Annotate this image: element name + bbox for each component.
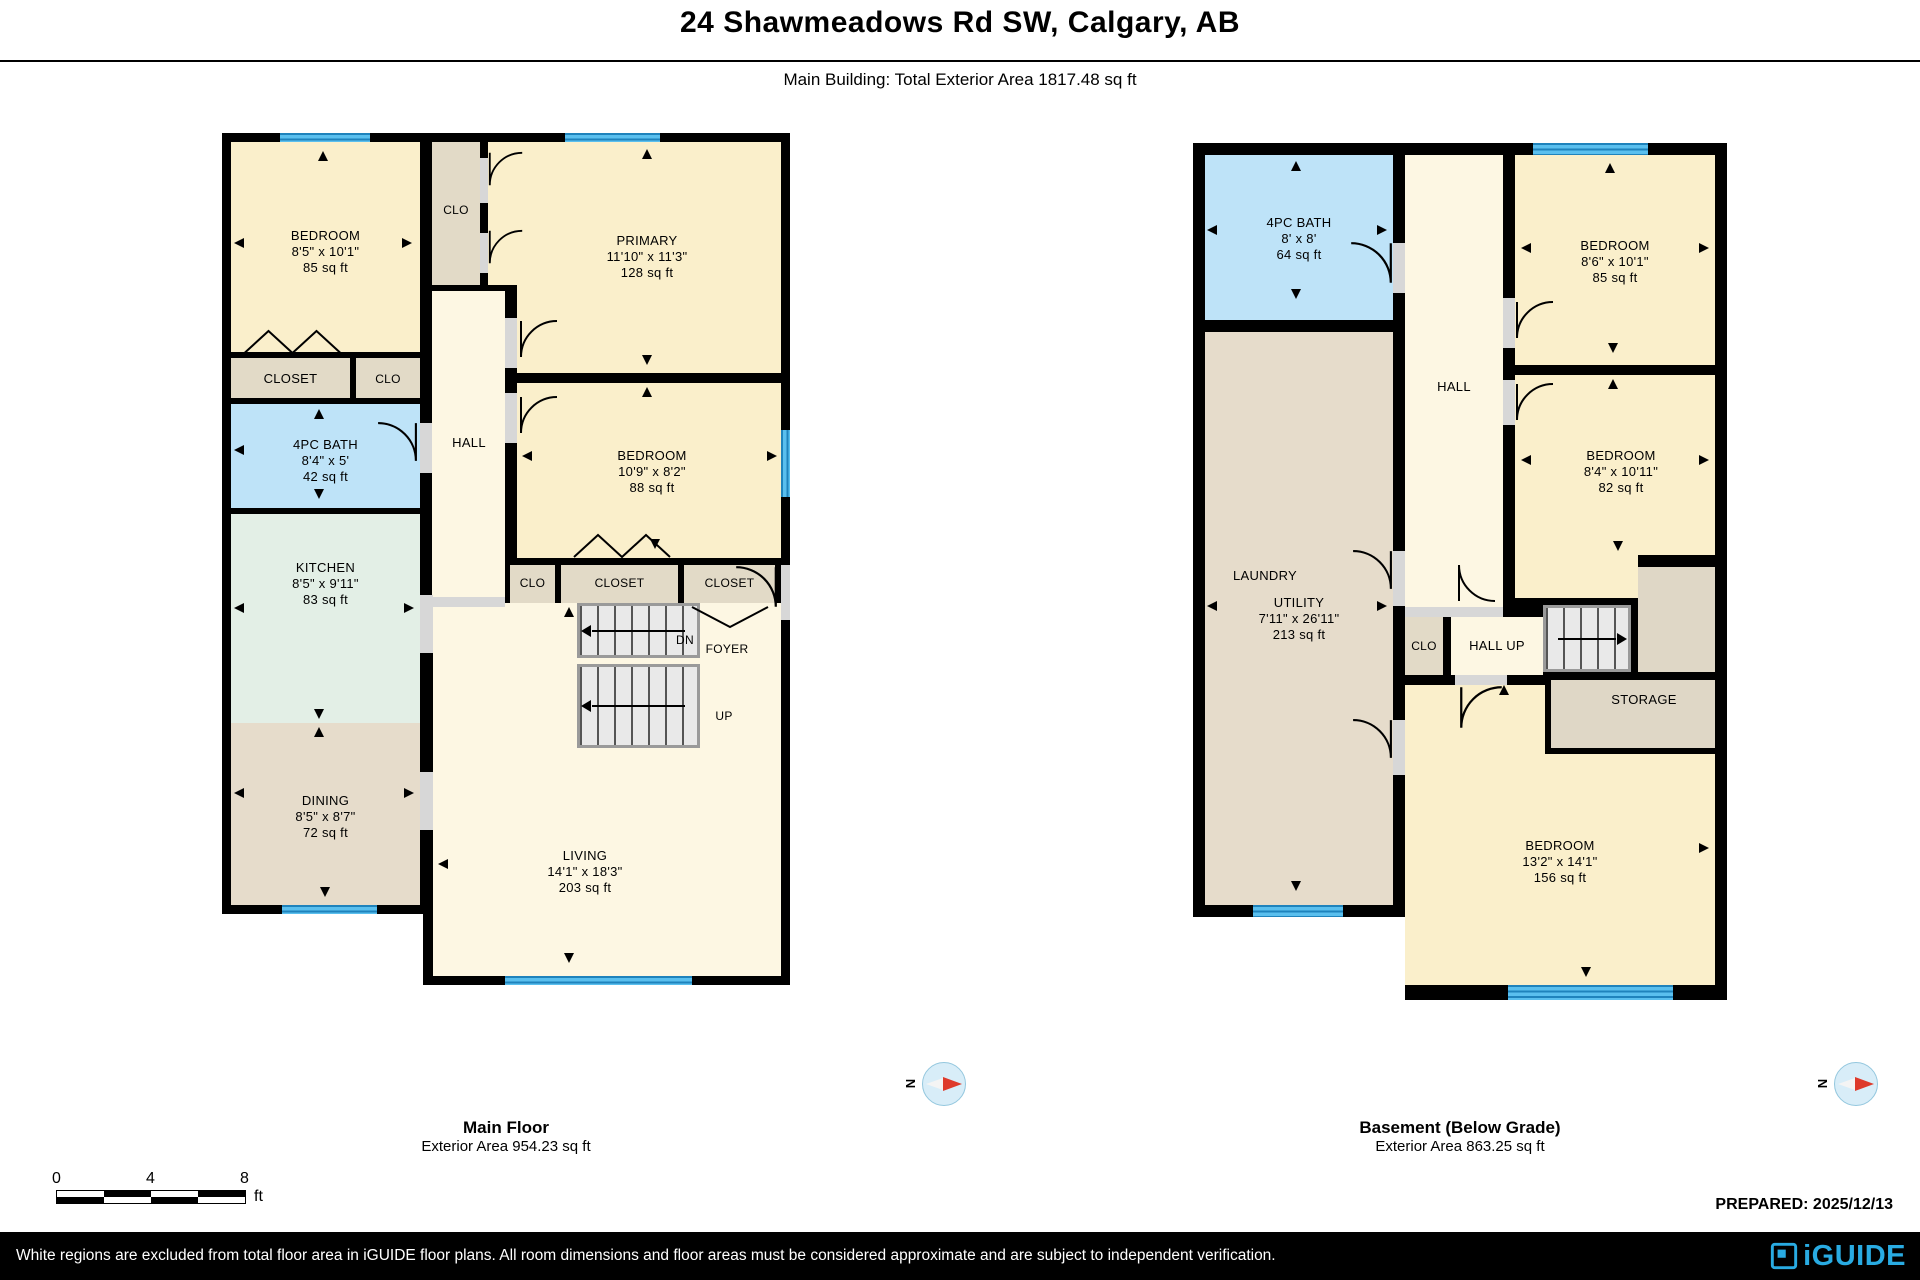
floor-plan-page: 24 Shawmeadows Rd SW, Calgary, AB Main B…: [0, 0, 1920, 1280]
scale-tick-4: 4: [146, 1170, 155, 1188]
stairs-up: [1543, 605, 1631, 672]
iguide-logo: iGUIDE: [1770, 1232, 1906, 1280]
room-label-clo-left: CLO: [356, 372, 420, 386]
compass-main-floor: N: [900, 1062, 970, 1106]
window: [282, 905, 377, 914]
main-floor-caption: Main Floor Exterior Area 954.23 sq ft: [222, 1118, 790, 1156]
scale-tick-0: 0: [52, 1170, 61, 1188]
main-floor-plan: BEDROOM8'5" x 10'1"85 sq ft CLO PRIMARY1…: [222, 133, 790, 985]
door-gap: [1455, 675, 1507, 685]
footer-bar: White regions are excluded from total fl…: [0, 1232, 1920, 1280]
door-gap: [480, 233, 488, 273]
opening-threshold: [1405, 607, 1503, 617]
room-label-clo: CLO: [1403, 639, 1445, 653]
dim-arrow: [1581, 967, 1591, 977]
prepared-date: PREPARED: 2025/12/13: [1715, 1196, 1893, 1214]
dim-arrow: [642, 355, 652, 365]
dim-arrow: [642, 387, 652, 397]
dim-arrow: [320, 887, 330, 897]
door-arc-icon: [1351, 549, 1393, 591]
dim-arrow: [1499, 685, 1509, 695]
entry-door-gap: [781, 565, 790, 620]
bifold-door-icon: [567, 533, 677, 559]
room-label-bedroom1: BEDROOM8'6" x 10'1"85 sq ft: [1515, 238, 1715, 286]
room-storage: [1638, 567, 1715, 672]
window: [505, 976, 692, 985]
stairs-up: [577, 664, 700, 748]
window: [280, 133, 370, 142]
label-up: UP: [706, 709, 742, 723]
door-gap: [480, 158, 488, 203]
dim-arrow: [767, 451, 777, 461]
scale-unit: ft: [254, 1188, 263, 1206]
compass-needle-tail: [1838, 1078, 1855, 1090]
scale-bar-graphic: [56, 1190, 246, 1204]
dim-arrow: [314, 727, 324, 737]
room-label-dining: DINING8'5" x 8'7"72 sq ft: [231, 793, 420, 841]
room-label-closet-mid: CLOSET: [561, 576, 678, 590]
dim-arrow: [314, 409, 324, 419]
window: [1533, 143, 1648, 155]
door-arc-icon: [1351, 718, 1393, 760]
compass-needle: [943, 1077, 962, 1091]
room-label-closet-foyer: CLOSET: [684, 576, 775, 590]
compass-needle: [1855, 1077, 1874, 1091]
room-label-bedroom3: BEDROOM13'2" x 14'1"156 sq ft: [1405, 838, 1715, 886]
room-label-hall: HALL: [1405, 379, 1503, 395]
room-label-bath: 4PC BATH8' x 8'64 sq ft: [1205, 215, 1393, 263]
dim-arrow: [1291, 161, 1301, 171]
stairs-down: [577, 603, 700, 658]
excluded-region: [222, 914, 423, 985]
dim-arrow: [564, 953, 574, 963]
compass-north-label: N: [903, 1079, 918, 1088]
compass-icon: [1834, 1062, 1878, 1106]
door-arc-icon: [1515, 300, 1555, 340]
dim-arrow: [1608, 343, 1618, 353]
door-arc-icon: [488, 229, 524, 265]
stair-arrow-icon: [1558, 638, 1616, 640]
room-storage: [1551, 680, 1715, 748]
dim-arrow: [1291, 881, 1301, 891]
door-arc-icon: [519, 319, 559, 359]
dim-arrow: [318, 151, 328, 161]
room-label-kitchen: KITCHEN8'5" x 9'11"83 sq ft: [231, 560, 420, 608]
bifold-door-icon: [690, 605, 770, 629]
title-divider: [0, 60, 1920, 62]
room-label-clo-mid: CLO: [510, 576, 555, 590]
door-gap: [505, 318, 517, 368]
dim-arrow: [642, 149, 652, 159]
door-arc-icon: [1457, 563, 1497, 603]
door-gap: [1393, 243, 1405, 293]
opening-threshold: [420, 772, 433, 830]
dim-arrow: [1608, 379, 1618, 389]
room-label-bedroom2: BEDROOM10'9" x 8'2"88 sq ft: [552, 448, 752, 496]
door-gap: [1503, 380, 1515, 425]
dim-arrow: [1291, 289, 1301, 299]
label-foyer: FOYER: [694, 642, 760, 656]
dim-arrow: [564, 607, 574, 617]
dim-arrow: [1605, 163, 1615, 173]
dim-arrow: [650, 539, 660, 549]
dim-arrow: [438, 859, 448, 869]
window: [565, 133, 660, 142]
room-kitchen: [231, 514, 420, 723]
disclaimer-text: White regions are excluded from total fl…: [16, 1232, 1276, 1280]
room-label-utility: UTILITY7'11" x 26'11"213 sq ft: [1205, 595, 1393, 643]
compass-needle-tail: [926, 1078, 943, 1090]
stair-arrow-icon: [592, 630, 685, 632]
dim-arrow: [522, 451, 532, 461]
page-title: 24 Shawmeadows Rd SW, Calgary, AB: [0, 6, 1920, 40]
door-gap: [1393, 551, 1405, 606]
room-label-primary: PRIMARY11'10" x 11'3"128 sq ft: [542, 233, 752, 281]
compass-icon: [922, 1062, 966, 1106]
door-arc-icon: [1515, 382, 1555, 422]
room-label-clo-top: CLO: [425, 203, 487, 217]
bifold-door-icon: [240, 329, 345, 355]
room-bedroom3: [1405, 685, 1545, 985]
compass-north-label: N: [1815, 1079, 1830, 1088]
room-label-closet-left: CLOSET: [231, 371, 350, 387]
building-subtitle: Main Building: Total Exterior Area 1817.…: [0, 70, 1920, 90]
room-label-living: LIVING14'1" x 18'3"203 sq ft: [485, 848, 685, 896]
room-label-laundry: LAUNDRY: [1205, 568, 1325, 584]
window: [1253, 905, 1343, 917]
room-label-storage: STORAGE: [1573, 692, 1715, 708]
dim-arrow: [1613, 541, 1623, 551]
iguide-logo-icon: [1770, 1242, 1798, 1270]
door-arc-icon: [519, 395, 559, 435]
basement-plan: 4PC BATH8' x 8'64 sq ft HALL BEDROOM8'6"…: [1193, 143, 1727, 1000]
room-label-bath: 4PC BATH8'4" x 5'42 sq ft: [231, 437, 420, 485]
basement-caption: Basement (Below Grade) Exterior Area 863…: [1193, 1118, 1727, 1156]
room-label-hall: HALL: [425, 435, 513, 451]
room-living-foyer: [433, 603, 781, 976]
room-label-bedroom: BEDROOM8'5" x 10'1"85 sq ft: [231, 228, 420, 276]
window: [1508, 985, 1673, 1000]
dim-arrow: [314, 709, 324, 719]
scale-bar: 0 4 8 ft: [56, 1170, 316, 1210]
door-arc-icon: [1459, 685, 1504, 730]
dim-arrow: [314, 489, 324, 499]
door-gap: [1393, 720, 1405, 775]
room-label-bedroom2: BEDROOM8'4" x 10'11"82 sq ft: [1527, 448, 1715, 496]
scale-tick-8: 8: [240, 1170, 249, 1188]
door-gap: [1503, 298, 1515, 348]
opening-threshold: [432, 597, 505, 607]
room-label-hall-up: HALL UP: [1449, 638, 1545, 654]
window: [781, 430, 790, 497]
excluded-region: [1193, 917, 1405, 1000]
door-arc-icon: [488, 151, 524, 187]
compass-basement: N: [1812, 1062, 1882, 1106]
stair-arrow-icon: [592, 705, 685, 707]
iguide-logo-text: iGUIDE: [1803, 1240, 1906, 1273]
